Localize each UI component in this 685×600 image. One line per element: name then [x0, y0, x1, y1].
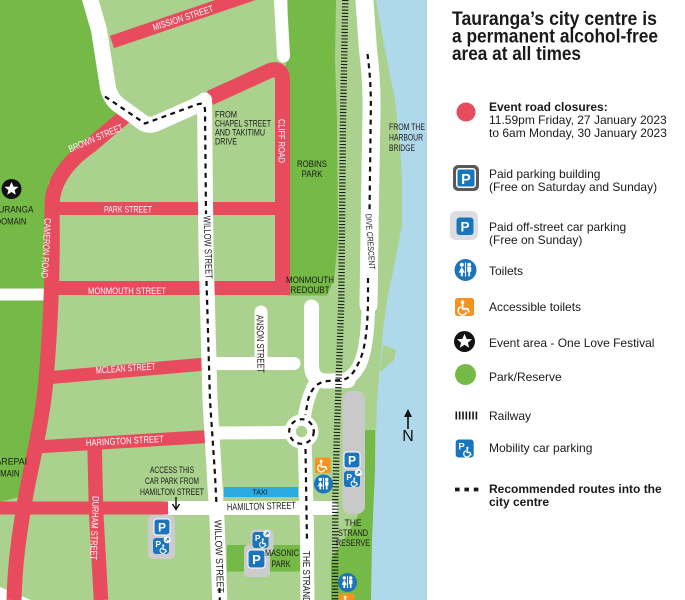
svg-text:11.59pm Friday, 27 January 202: 11.59pm Friday, 27 January 2023	[489, 113, 667, 127]
svg-text:DOMAIN: DOMAIN	[0, 217, 27, 227]
svg-text:P: P	[460, 220, 469, 235]
svg-text:DOMAIN: DOMAIN	[0, 469, 20, 479]
svg-text:(Free on Sunday): (Free on Sunday)	[489, 233, 582, 247]
svg-text:(Free on Saturday and Sunday): (Free on Saturday and Sunday)	[489, 180, 657, 194]
svg-text:ANSON STREET: ANSON STREET	[254, 315, 266, 373]
svg-text:DURHAM STREET: DURHAM STREET	[87, 496, 100, 560]
svg-text:MONMOUTH STREET: MONMOUTH STREET	[88, 286, 166, 297]
svg-text:P: P	[255, 533, 261, 543]
svg-text:WILLOW STREET: WILLOW STREET	[201, 216, 214, 279]
svg-text:HAMILTON STREET: HAMILTON STREET	[227, 501, 296, 514]
svg-text:MASONIC: MASONIC	[265, 548, 299, 558]
svg-text:P: P	[346, 472, 352, 482]
svg-text:Paid parking building: Paid parking building	[489, 167, 600, 181]
svg-text:ROBINS: ROBINS	[297, 159, 327, 169]
svg-text:P: P	[458, 442, 465, 453]
svg-text:CAR PARK FROM: CAR PARK FROM	[145, 476, 199, 486]
svg-text:WHAREPAI: WHAREPAI	[0, 457, 27, 467]
svg-text:RESERVE: RESERVE	[336, 538, 370, 548]
svg-text:THE STRAND: THE STRAND	[300, 551, 311, 600]
svg-text:TAURANGA: TAURANGA	[0, 205, 34, 215]
svg-text:P: P	[158, 521, 166, 535]
svg-text:THE: THE	[345, 518, 362, 528]
svg-text:STRAND: STRAND	[338, 528, 368, 538]
svg-text:BRIDGE: BRIDGE	[389, 143, 415, 154]
svg-text:REDOUBT: REDOUBT	[291, 285, 330, 295]
svg-text:PARK: PARK	[302, 169, 323, 179]
svg-text:P: P	[348, 454, 356, 468]
svg-text:CLIFF ROAD: CLIFF ROAD	[276, 119, 287, 163]
svg-text:Mobility car parking: Mobility car parking	[489, 441, 592, 455]
svg-text:DRIVE: DRIVE	[215, 137, 237, 147]
svg-text:Park/Reserve: Park/Reserve	[489, 370, 562, 384]
svg-text:P: P	[155, 539, 161, 549]
svg-text:Accessible toilets: Accessible toilets	[489, 300, 581, 314]
svg-text:HAMILTON STREET: HAMILTON STREET	[140, 487, 204, 497]
svg-text:area at all times: area at all times	[452, 44, 581, 65]
svg-text:Railway: Railway	[489, 409, 531, 423]
svg-text:P: P	[461, 172, 471, 188]
svg-text:PARK STREET: PARK STREET	[104, 205, 152, 216]
svg-text:N: N	[402, 428, 414, 445]
svg-text:P: P	[252, 552, 261, 567]
svg-text:Event road closures:: Event road closures:	[489, 100, 608, 114]
svg-text:to 6am Monday, 30 January 2023: to 6am Monday, 30 January 2023	[489, 126, 667, 140]
svg-text:MONMOUTH: MONMOUTH	[286, 275, 334, 285]
svg-text:ACCESS THIS: ACCESS THIS	[150, 465, 194, 475]
svg-text:Paid off-street car parking: Paid off-street car parking	[489, 220, 626, 234]
svg-text:TAXI: TAXI	[253, 488, 268, 497]
svg-text:Recommended routes into the: Recommended routes into the	[489, 482, 662, 496]
svg-text:PARK: PARK	[272, 559, 291, 569]
svg-text:HARBOUR: HARBOUR	[389, 133, 423, 144]
svg-text:FROM THE: FROM THE	[389, 122, 425, 133]
svg-text:Event area - One Love Festival: Event area - One Love Festival	[489, 336, 654, 350]
svg-text:city centre: city centre	[489, 495, 549, 509]
svg-text:Toilets: Toilets	[489, 264, 523, 278]
